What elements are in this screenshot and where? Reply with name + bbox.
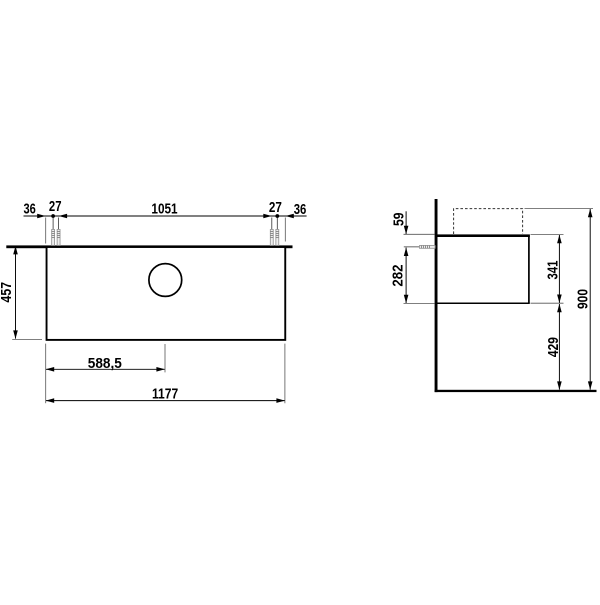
svg-text:429: 429 (545, 337, 562, 357)
svg-text:341: 341 (544, 261, 561, 280)
svg-text:1177: 1177 (152, 386, 178, 403)
svg-text:27: 27 (269, 199, 282, 216)
svg-text:36: 36 (294, 201, 307, 218)
svg-text:1051: 1051 (151, 201, 177, 218)
svg-text:36: 36 (23, 201, 35, 218)
svg-text:900: 900 (575, 289, 592, 309)
svg-text:588,5: 588,5 (88, 355, 122, 372)
svg-text:59: 59 (390, 212, 407, 226)
svg-text:457: 457 (0, 282, 15, 303)
svg-text:282: 282 (389, 265, 406, 287)
svg-text:27: 27 (49, 198, 62, 215)
